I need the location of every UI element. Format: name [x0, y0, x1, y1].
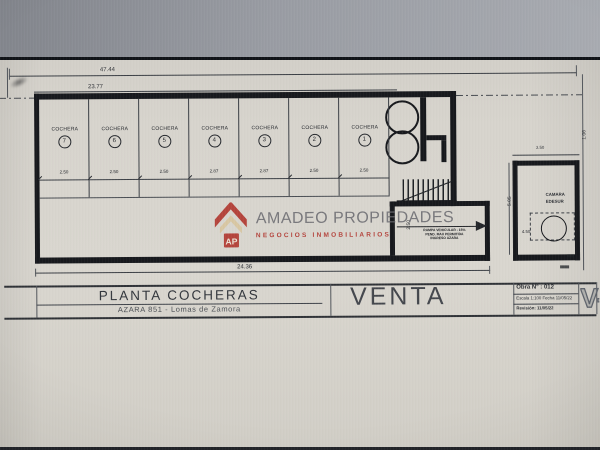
plan-subtitle: AZARA 851 - Lomas de Zamora: [36, 304, 322, 315]
axis-dashdot-left: [0, 98, 34, 99]
stall-label: COCHERA: [51, 126, 76, 132]
agency-tagline: NEGOCIOS INMOBILIARIOS: [256, 231, 454, 239]
titleblock-divider: [330, 284, 331, 316]
stall-label: COCHERA: [151, 126, 176, 132]
stall-number: 3: [258, 134, 271, 147]
stall-width-dim: 2.50: [102, 169, 127, 174]
stall-width-dim: 2.87: [252, 168, 277, 173]
stall-number: 2: [308, 134, 321, 147]
transformer-circle: [541, 215, 567, 241]
obra-revision: Revisión: 11/05/22: [516, 305, 578, 310]
tiny-annotation: [567, 254, 574, 257]
sale-label: VENTA: [333, 282, 463, 312]
dimension-bottom-end-right: [489, 266, 490, 274]
stall-number: 1: [358, 134, 371, 147]
dim-label-right-edge: 1.06: [582, 130, 587, 140]
stall-cochera-1: COCHERA12.50: [339, 97, 390, 195]
stall-cochera-3: COCHERA32.87: [239, 98, 290, 196]
room-label-line1: CAMARA: [546, 192, 565, 196]
sheet-code: V-0: [580, 282, 599, 314]
tiny-annotation: [560, 265, 569, 268]
stall-number: 4: [208, 134, 221, 147]
room-dim-top-line: [512, 154, 579, 155]
screen-top-band: [0, 0, 600, 57]
stall-number: 5: [158, 135, 171, 148]
room-dim-left-label: 5.05: [507, 196, 512, 206]
plan-sheet: 47.44 23.77 1.06 COCHERA72.50COCHERA62.5…: [0, 0, 600, 450]
stall-label: COCHERA: [251, 125, 276, 131]
room-wall-top: [512, 160, 579, 165]
stall-width-dim: 2.50: [352, 168, 377, 173]
stall-cochera-5: COCHERA52.50: [139, 99, 190, 197]
dimension-line-overall: [9, 72, 577, 76]
obra-scale-date: Escala 1:100 Fecha 11/05/22: [516, 295, 578, 300]
stall-cochera-7: COCHERA72.50: [39, 99, 90, 197]
room-dim-top-label: 3.50: [535, 146, 544, 150]
dimension-end-left: [9, 69, 10, 80]
obra-number: Obra N° : 012: [516, 284, 578, 290]
wall-stub-vertical: [441, 140, 446, 162]
room-wall-left: [512, 161, 518, 261]
stall-label: COCHERA: [101, 126, 126, 132]
water-tank-circle-1: [385, 100, 419, 134]
dimension-end-right: [576, 65, 577, 76]
titleblock-divider: [513, 283, 514, 315]
stall-number: 7: [58, 135, 71, 148]
room-dim-inner-label: 4.50: [522, 230, 530, 234]
dim-label-bottom: 24.36: [236, 264, 253, 270]
screen-divider-line: [0, 57, 600, 60]
dim-label-building: 23.77: [87, 84, 104, 90]
stall-cochera-6: COCHERA62.50: [89, 99, 140, 197]
stall-label: COCHERA: [301, 125, 326, 131]
room-label-line2: EDESUR: [546, 199, 564, 203]
water-tank-circle-2: [385, 130, 419, 164]
stall-cochera-2: COCHERA22.50: [289, 98, 340, 196]
right-boundary-line: [582, 74, 584, 270]
titleblock-bottom-rule: [4, 314, 596, 320]
stall-cochera-4: COCHERA42.87: [189, 98, 240, 196]
stall-width-dim: 2.50: [152, 169, 177, 174]
plan-title: PLANTA COCHERAS: [36, 287, 322, 304]
stall-label: COCHERA: [201, 125, 226, 131]
agency-name: AMADEO PROPIEDADES: [256, 209, 454, 228]
axis-dashdot-right: [456, 94, 582, 96]
room-dim-left-line: [508, 163, 510, 255]
photographed-floor-plan: 47.44 23.77 1.06 COCHERA72.50COCHERA62.5…: [0, 0, 600, 450]
garage-stalls: COCHERA72.50COCHERA62.50COCHERA52.50COCH…: [39, 97, 390, 197]
stall-number: 6: [108, 135, 121, 148]
stall-width-dim: 2.50: [302, 168, 327, 173]
stall-width-dim: 2.87: [202, 168, 227, 173]
amadeo-logo-icon: AP: [212, 202, 250, 248]
dimension-line-bottom: [35, 270, 490, 274]
wall-bottom: [35, 255, 490, 264]
dimension-bottom-end-left: [35, 269, 36, 277]
stall-width-dim: 2.50: [52, 169, 77, 174]
wall-tank-niche: [420, 97, 426, 161]
room-wall-right: [574, 160, 580, 260]
ramp-arrow-head: [476, 221, 487, 231]
stall-label: COCHERA: [351, 125, 376, 131]
dim-label-overall: 47.44: [99, 67, 116, 73]
logo-monogram: AP: [226, 236, 238, 246]
agency-watermark: AP AMADEO PROPIEDADES NEGOCIOS INMOBILIA…: [212, 201, 455, 248]
